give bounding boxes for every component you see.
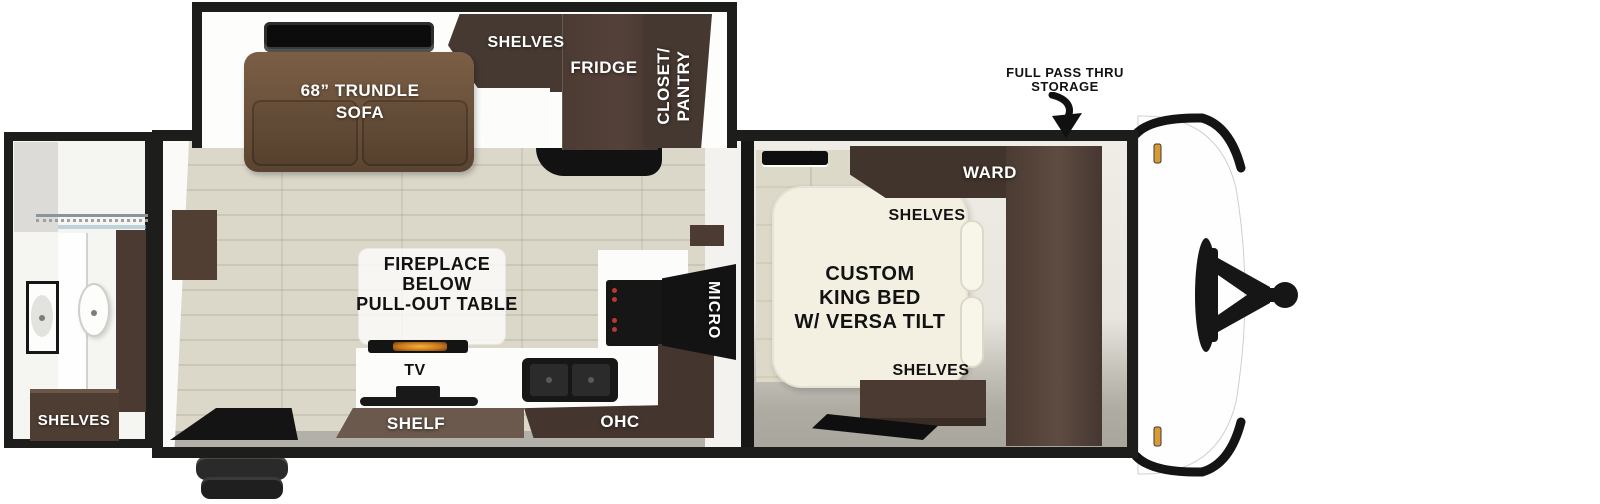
bath-sink [78, 283, 110, 337]
front-cap-body [1138, 116, 1245, 474]
clearance-light-top [1154, 144, 1161, 163]
entry-step-well [536, 148, 662, 176]
micro-label: MICRO [704, 260, 722, 360]
fridge-label: FRIDGE [554, 58, 654, 78]
kitchen-counter-corner [476, 88, 550, 148]
sink-basin-right [572, 364, 610, 396]
shower-curtain [36, 219, 148, 222]
wardrobe [1006, 146, 1102, 446]
ohc-label: OHC [540, 412, 700, 432]
bath-sink-reflection [31, 295, 53, 337]
left-wall-cabinet [172, 210, 217, 280]
fireplace-flame [393, 342, 447, 351]
microwave [662, 264, 736, 360]
closet-pantry-label: CLOSET/ PANTRY [654, 31, 696, 141]
sink-basin-left [530, 364, 568, 396]
tv-stand [360, 397, 478, 406]
bed-shelves-top-label: SHELVES [872, 207, 982, 225]
storage-arrow-icon [1042, 92, 1098, 144]
partition-cabinet [690, 225, 724, 246]
bath-shelves-label: SHELVES [24, 412, 124, 429]
bed-shelves-bottom-label: SHELVES [876, 362, 986, 380]
rv-floorplan: SHOWER SHELVES 68” TRUNDLE SOFA SHELVES … [0, 0, 1600, 504]
bed-shelves-cabinet [860, 380, 986, 426]
front-cap [1120, 90, 1320, 504]
shelf-label: SHELF [336, 414, 496, 434]
bath-cabinet [116, 230, 146, 412]
pass-thru-storage-label: FULL PASS THRU STORAGE [995, 66, 1135, 94]
fireplace-label: FIREPLACE BELOW PULL-OUT TABLE [327, 254, 547, 314]
tv-label: TV [380, 362, 450, 380]
hitch-crossbar [1206, 248, 1218, 342]
shower-rod [36, 214, 148, 217]
bedroom-window [762, 151, 828, 165]
entry-step-lower [201, 477, 283, 499]
hitch-ball [1272, 282, 1298, 308]
bedroom-partition-wall [741, 141, 754, 447]
clearance-light-bottom [1154, 427, 1161, 446]
shelves-label: SHELVES [470, 34, 582, 52]
sofa-label: 68” TRUNDLE SOFA [260, 80, 460, 124]
king-bed-label: CUSTOM KING BED W/ VERSA TILT [770, 262, 970, 334]
ward-label: WARD [940, 163, 1040, 183]
glass-shelf [58, 225, 146, 229]
slideout-window [264, 22, 434, 52]
